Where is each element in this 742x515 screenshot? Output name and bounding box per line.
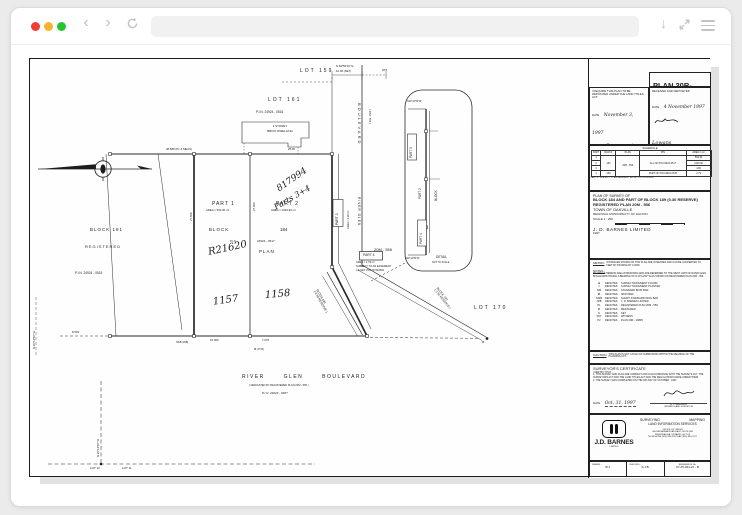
label-dwelling-1: 1 STOREY [258,125,302,128]
label-dwelling-2: BRICK DWELLING [258,130,302,133]
detail-part-2: PART 2 [419,188,423,199]
label-registered: REGISTERED [85,245,121,250]
deposit-box: I REQUIRE THIS PLAN TO BE DEPOSITED UNDE… [589,87,649,145]
label-ib-1743: IB (1743) [254,349,264,352]
certificate-date-value: Oct. 31, 1997 [605,401,636,407]
plan-scale: SCALE 1 : 250 [593,218,707,221]
url-bar[interactable] [151,16,639,37]
label-dedicated-by: ( DEDICATED BY REGISTERED PLAN 20M - 556… [249,385,309,388]
survey-plan-sheet: LOT 159 N 69°50'10" E 10.06 (SET) WIT LO… [29,58,710,477]
schedule-cell: 20M - 556 [616,155,640,176]
label-bearing-left-edge: N 20°12'50" W [33,331,36,349]
jdbarnes-logo-icon [602,420,626,438]
label-pin-0517: 24924 - 0517 [257,240,275,243]
plan-title-box: PLAN OF SURVEY OF BLOCK 184 AND PART OF … [589,191,711,259]
certificate-box: SURVEYOR'S CERTIFICATE I CERTIFY THAT : … [589,364,711,414]
notes-box: METRIC DISTANCES SHOWN ON THIS PLAN ARE … [589,259,711,351]
label-20m-556: 20M - 556 [374,248,392,253]
label-dim-27509: 27.509 [190,212,193,221]
schedule-cell: 4 [591,171,601,176]
detail-title: DETAIL [436,256,447,260]
firm-logo-name: J.D. BARNES [593,439,635,446]
schedule-cell: ALL OF PIN 24924-0517 [640,155,686,171]
metric-text: DISTANCES SHOWN ON THIS PLAN ARE IN METR… [607,262,708,268]
label-part-1: PART 1 [212,202,235,208]
legend-meaning: PLAN 20R - 10835 [621,319,707,323]
desktop-background: ‹ › ↓ [0,0,742,515]
schedule-cell: 2.79 [686,171,711,176]
received-date-value: 4 November 1997 [664,105,705,110]
label-ssib: SSIB (JDB) [176,342,188,345]
label-dim-38: 38.688 (P1 & MEAS) [166,148,192,151]
detail-bearing-bottom: N20°12'50"W [405,258,419,261]
label-lot-12: LOT 12 [90,467,100,470]
label-dim-25: 25.00 [288,148,295,151]
label-boulevard-vertical: BOULEVARD [356,103,361,145]
detail-part-3: PART 3 [410,147,414,158]
schedule-note: PART 4 - SUBJECT TO AN EASEMENT AS SET O… [591,177,710,180]
title-block: PLAN 20R-12623 I REQUIRE THIS PLAN TO BE… [588,59,711,478]
label-dim-15: 15.000 [210,339,219,342]
detail-bearing-top: N20°12'50"W [407,101,421,104]
label-dim-top: 10.06 (SET) [336,70,351,73]
received-box: RECEIVED AND DEPOSITED DATE 4 November 1… [649,87,711,145]
registrar-signature [652,115,698,126]
deposit-date-label: DATE [592,113,599,117]
firm-year: 1997 [593,232,707,235]
drawn-value: W.J. [592,466,624,469]
caution-text: THIS PLAN IS NOT A PLAN OF SUBDIVISION W… [609,354,708,362]
label-river-glen-boulevard: RIVER GLEN BOULEVARD [242,375,366,381]
back-icon[interactable]: ‹ [77,14,95,32]
reference-value: 97-25-464-21 - B [667,466,708,469]
certificate-item-2: 2. THE SURVEY WAS COMPLETED ON THE 20th … [593,380,707,383]
label-part-1-area: AREA = 552.90 m² [206,209,229,212]
label-block-181: BLOCK 181 [90,227,123,232]
label-block-number-184: 184 [280,227,288,232]
schedule-table: PART BLOCK PLAN PIN AREA in m² 1 184 20M… [591,150,712,177]
label-part-4: PART 4 [363,254,375,258]
legend-symbol: P2 [593,319,605,323]
menu-icon[interactable] [701,20,715,34]
label-plan-word: PLAN [259,249,275,254]
received-title: RECEIVED AND DEPOSITED [652,90,708,93]
label-pin-0516: P.I.N. 24924 - 0516 [256,111,283,115]
label-bearing-bottom-line: N 20°12'50" W [97,439,100,457]
checked-value: S.J.B. [629,466,662,469]
download-icon[interactable]: ↓ [660,15,667,31]
label-dim-7: 7.675 [262,339,269,342]
schedule-cell: 189 [601,171,616,176]
schedule-row-4: 4 189 PART OF PIN 24924-0515 2.79 [591,171,711,176]
label-river-glen-vertical: RIVER GLEN [356,197,360,226]
label-20m-556-vertical: ( 20M - 556 ) [367,109,370,124]
label-lot-159: LOT 159 [300,69,333,75]
firm-logo-sub: LIMITED [593,446,635,449]
notes-text: BEARINGS HEREON ARE ASTRONOMIC AND ARE R… [593,273,707,279]
label-part-4-easement-2: AS SET OUT IN 504502 [356,270,384,273]
certificate-surveyor-role: ONTARIO LAND SURVEYOR [650,406,707,409]
label-block-word: BLOCK [209,227,229,232]
handwriting-1158: 1158 [265,288,291,302]
label-lot-161: LOT 161 [268,98,301,104]
caution-box: CAUTION THIS PLAN IS NOT A PLAN OF SUBDI… [589,351,711,364]
label-bearing-top: N 69°50'10" E [336,65,353,68]
forward-icon[interactable]: › [99,14,117,32]
label-witness: WIT [382,69,387,72]
plan-number-box: PLAN 20R-12623 [649,72,711,87]
label-part-3: PART 3 [336,213,340,225]
detail-block: BLOCK [435,190,439,201]
legend-item: P2DENOTESPLAN 20R - 10835 [593,319,707,323]
legend-list: ■DENOTESSURVEY MONUMENT FOUND □DENOTESSU… [593,282,707,323]
close-window-button[interactable] [31,22,40,31]
caution-label: CAUTION [593,354,607,362]
browser-window: ‹ › ↓ [10,7,732,507]
firm-service-land-info: LAND INFORMATION SERVICES [638,423,707,427]
deposit-date-value: November 3, 1997 [592,113,633,136]
schedule-cell: 184 [601,155,616,171]
label-ib-corner: IB [482,342,484,345]
minimize-window-button[interactable] [44,22,53,31]
plan-title-region: REGIONAL MUNICIPALITY OF HALTON [593,213,707,216]
label-pin-0515: P.I.N. 24924 - 0515 [75,272,102,276]
label-part-2-area: AREA = 1046.90 m² [271,209,296,212]
expand-icon[interactable] [678,18,691,34]
browser-content: LOT 159 N 69°50'10" E 10.06 (SET) WIT LO… [11,45,731,507]
detail-not-to-scale: NOT TO SCALE [432,262,449,265]
certificate-signature [662,388,696,398]
scale-bar [615,223,685,225]
schedule-cell: PART OF PIN 24924-0515 [640,171,686,176]
label-lot-170: LOT 170 [474,306,507,312]
metric-label: METRIC [593,262,605,268]
browser-toolbar: ‹ › ↓ [11,8,731,45]
zoom-window-button[interactable] [57,22,66,31]
footer-strip: DRAWN : W.J. CHECKED : S.J.B. REFERENCE … [589,461,711,477]
label-dim-27609: 27.609 [253,202,256,211]
detail-part-4: PART 4 [420,233,424,244]
legend-denotes: DENOTES [605,319,621,323]
firm-phone-fax: TELEPHONE (905) 890-2307 FAX (905) 890-2… [638,436,707,439]
schedule-box: SCHEDULE PART BLOCK PLAN PIN AREA in m² … [589,145,711,191]
label-pin-0487: P.I.N. 24924 - 0487 [262,392,288,395]
reload-icon[interactable] [123,17,141,35]
deposit-statement: I REQUIRE THIS PLAN TO BE DEPOSITED UNDE… [592,90,646,100]
certificate-date-label: DATE [593,401,600,405]
received-date-label: DATE [652,105,659,109]
label-dim-8: 8.503 [72,331,79,334]
label-lot-11: LOT 11 [122,467,132,470]
label-part-3-area: AREA = 4.90 m² [348,210,351,229]
firm-box: J.D. BARNES LIMITED SURVEYING MAPPING LA… [589,414,711,461]
